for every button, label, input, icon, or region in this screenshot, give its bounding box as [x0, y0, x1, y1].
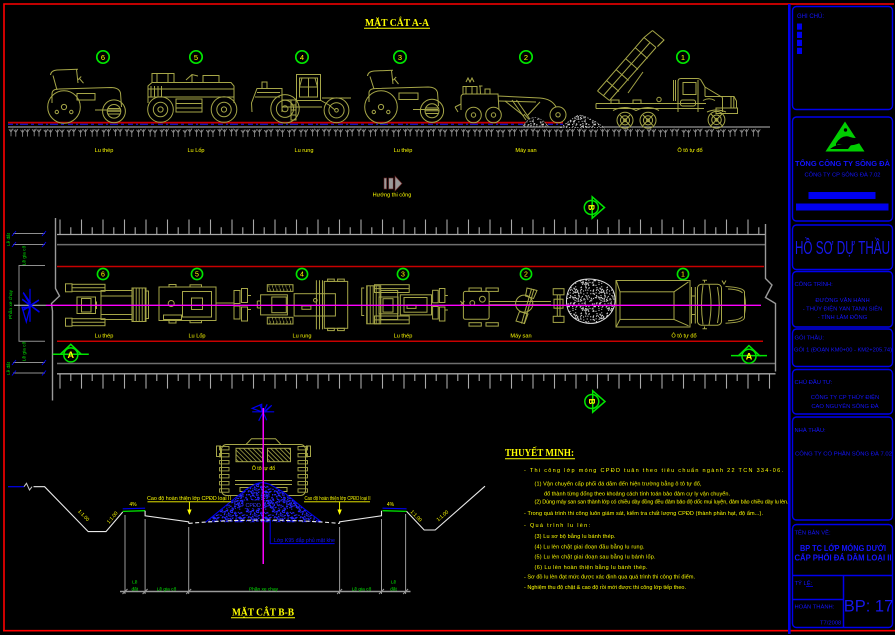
- svg-text:3: 3: [398, 53, 402, 62]
- svg-text:MẶT CẮT B-B: MẶT CẮT B-B: [232, 606, 295, 619]
- svg-text:đất: đất: [390, 586, 397, 592]
- svg-text:Lề: Lề: [391, 580, 397, 586]
- svg-text:A: A: [746, 352, 753, 362]
- svg-text:T7/2008: T7/2008: [820, 621, 841, 627]
- svg-text:4: 4: [300, 272, 304, 279]
- svg-text:5: 5: [194, 53, 198, 62]
- svg-text:4%: 4%: [129, 502, 137, 508]
- svg-text:Lu thép: Lu thép: [95, 334, 114, 340]
- svg-text:B: B: [587, 205, 596, 211]
- svg-text:(5) Lu lèn chặt giai đoạn sau: (5) Lu lèn chặt giai đoạn sau bằng lu bá…: [535, 553, 656, 560]
- svg-text:(4) Lu lèn chặt giai đoạn đầu: (4) Lu lèn chặt giai đoạn đầu bằng lu ru…: [535, 543, 645, 550]
- svg-text:(6) Lu lèn hoàn thiện bằng lu: (6) Lu lèn hoàn thiện bằng lu bánh thép.: [535, 564, 648, 571]
- svg-text:Hướng thi công: Hướng thi công: [373, 192, 412, 198]
- svg-text:GHI CHÚ:: GHI CHÚ:: [797, 13, 824, 20]
- svg-text:CAO NGUYÊN SÔNG ĐÀ: CAO NGUYÊN SÔNG ĐÀ: [811, 402, 878, 410]
- svg-text:5: 5: [195, 272, 199, 279]
- svg-text:Phần xe chạy: Phần xe chạy: [249, 586, 279, 592]
- svg-text:BP TC LỚP MÓNG DƯỚI: BP TC LỚP MÓNG DƯỚI: [800, 542, 886, 553]
- svg-text:- Quá trình lu lèn:: - Quá trình lu lèn:: [524, 523, 590, 529]
- svg-text:BP: 17: BP: 17: [844, 598, 894, 616]
- svg-text:(2) Dùng máy san san thành lớ: (2) Dùng máy san san thành lớp có chiều …: [535, 499, 789, 505]
- svg-text:Lu Lốp: Lu Lốp: [187, 148, 204, 154]
- svg-text:đất: đất: [131, 586, 138, 592]
- svg-text:(3) Lu sơ bộ bằng lu bánh thé: (3) Lu sơ bộ bằng lu bánh thép.: [535, 533, 616, 540]
- svg-text:1: 1: [681, 272, 685, 279]
- svg-text:CẤP PHỐI ĐÁ DĂM LOẠI II: CẤP PHỐI ĐÁ DĂM LOẠI II: [795, 552, 892, 563]
- svg-text:B: B: [587, 399, 596, 405]
- svg-text:6: 6: [101, 53, 105, 62]
- svg-text:CHỦ ĐẦU TƯ:: CHỦ ĐẦU TƯ:: [795, 379, 833, 386]
- svg-text:Lề đất: Lề đất: [6, 361, 11, 374]
- svg-text:- TỈNH LÂM ĐỒNG: - TỈNH LÂM ĐỒNG: [818, 314, 868, 321]
- svg-text:NHÀ THẦU:: NHÀ THẦU:: [795, 427, 827, 434]
- svg-text:Lề: Lề: [132, 580, 138, 586]
- svg-text:- Nghiệm thu độ chặt & cao độ: - Nghiệm thu độ chặt & cao độ rồi mới đư…: [524, 585, 686, 591]
- svg-text:Lu thép: Lu thép: [95, 148, 114, 154]
- svg-text:Cao độ hoàn thiện lớp CPĐD loạ: Cao độ hoàn thiện lớp CPĐD loại II: [305, 496, 371, 502]
- svg-text:Lu Lốp: Lu Lốp: [188, 334, 205, 340]
- svg-text:MẶT CẮT A-A: MẶT CẮT A-A: [365, 16, 429, 29]
- svg-text:TỔNG CÔNG TY SÔNG ĐÀ: TỔNG CÔNG TY SÔNG ĐÀ: [795, 159, 891, 168]
- svg-text:Lề gia cố: Lề gia cố: [22, 245, 28, 265]
- svg-text:Lề gia cố: Lề gia cố: [352, 586, 372, 592]
- svg-text:4: 4: [300, 53, 304, 62]
- svg-text:CPĐD: CPĐD: [246, 503, 261, 509]
- svg-text:Cao độ hoàn thiện lớp CPĐD loạ: Cao độ hoàn thiện lớp CPĐD loại II: [147, 496, 231, 502]
- svg-text:(1) Vận chuyển cấp phối đá dă: (1) Vận chuyển cấp phối đá dăm đến hiện …: [535, 480, 702, 487]
- svg-text:Lu thép: Lu thép: [394, 148, 413, 154]
- svg-text:TÊN BẢN VẼ:: TÊN BẢN VẼ:: [795, 529, 831, 537]
- svg-text:ĐƯỜNG VẬN HÀNH: ĐƯỜNG VẬN HÀNH: [815, 297, 869, 304]
- svg-text:Ô tô tự đổ: Ô tô tự đổ: [671, 333, 696, 340]
- svg-text:Máy san: Máy san: [510, 334, 531, 340]
- svg-text:CÔNG TY CỔ PHẦN SÔNG ĐÀ 7.02: CÔNG TY CỔ PHẦN SÔNG ĐÀ 7.02: [795, 451, 892, 458]
- svg-text:Ô tô tự đổ: Ô tô tự đổ: [677, 147, 702, 154]
- svg-text:Lề gia cố: Lề gia cố: [157, 586, 177, 592]
- svg-text:Lề đất: Lề đất: [6, 232, 11, 245]
- svg-text:THUYẾT MINH:: THUYẾT MINH:: [505, 446, 574, 459]
- svg-text:6: 6: [101, 272, 105, 279]
- svg-text:- Sơ đồ lu lèn đạt mức được xá: - Sơ đồ lu lèn đạt mức được xác định qua…: [524, 573, 695, 580]
- svg-text:Lu rung: Lu rung: [295, 148, 314, 154]
- svg-text:HOÀN THÀNH:: HOÀN THÀNH:: [795, 604, 835, 611]
- svg-text:Lu rung: Lu rung: [293, 334, 312, 340]
- svg-text:Lề gia cố: Lề gia cố: [22, 341, 28, 361]
- svg-text:Lớp K95 đắp phủ mặt khe: Lớp K95 đắp phủ mặt khe: [274, 537, 335, 544]
- svg-text:CÔNG TY CP SÔNG ĐÀ 7.02: CÔNG TY CP SÔNG ĐÀ 7.02: [805, 172, 881, 179]
- svg-text:2: 2: [524, 53, 528, 62]
- svg-text:đổ thành từng đống theo khoảng: đổ thành từng đống theo khoảng cách tính…: [544, 490, 730, 497]
- svg-text:1: 1: [681, 53, 685, 62]
- svg-text:CÔNG TRÌNH:: CÔNG TRÌNH:: [795, 281, 834, 288]
- svg-text:TỶ LỆ:: TỶ LỆ:: [795, 579, 813, 587]
- svg-text:HỒ SƠ DỰ THẦU: HỒ SƠ DỰ THẦU: [795, 237, 890, 258]
- svg-text:CÔNG TY CP THỦY ĐIỆN: CÔNG TY CP THỦY ĐIỆN: [811, 393, 879, 401]
- svg-text:GÓI THẦU:: GÓI THẦU:: [795, 335, 825, 342]
- svg-text:Máy san: Máy san: [515, 148, 536, 154]
- svg-text:- THỦY ĐIỆN YAN TANN SIÊN: - THỦY ĐIỆN YAN TANN SIÊN: [803, 305, 883, 313]
- svg-text:A: A: [68, 350, 75, 360]
- svg-text:- Trong quá trình thi công luô: - Trong quá trình thi công luôn giám sát…: [524, 510, 763, 517]
- svg-text:GÓI 1 (ĐOẠN KM0+00 - KM2+205.7: GÓI 1 (ĐOẠN KM0+00 - KM2+205.74): [794, 347, 892, 354]
- svg-text:Phần xe chạy: Phần xe chạy: [8, 289, 14, 319]
- svg-text:Lu thép: Lu thép: [394, 334, 413, 340]
- svg-text:2: 2: [524, 272, 528, 279]
- svg-text:4%: 4%: [387, 502, 395, 508]
- svg-text:3: 3: [401, 272, 405, 279]
